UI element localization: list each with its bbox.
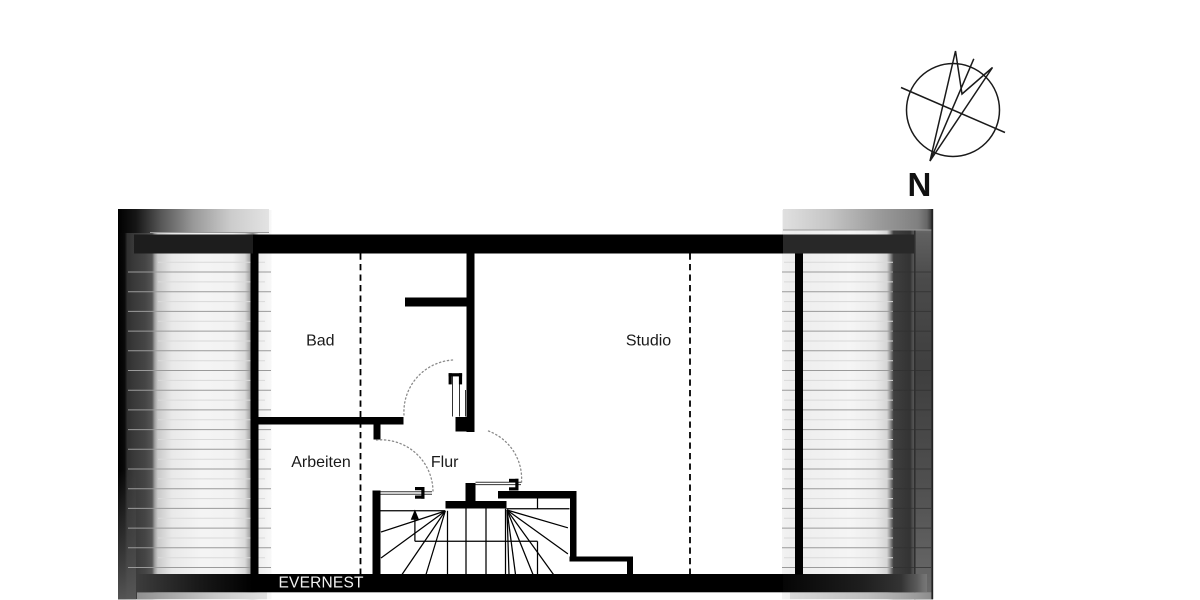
svg-text:Studio: Studio — [626, 333, 671, 350]
svg-text:N: N — [908, 166, 932, 203]
svg-text:Flur: Flur — [431, 454, 459, 471]
svg-text:EVERNEST: EVERNEST — [279, 575, 364, 592]
svg-text:Bad: Bad — [306, 333, 334, 350]
svg-text:Arbeiten: Arbeiten — [291, 454, 351, 471]
